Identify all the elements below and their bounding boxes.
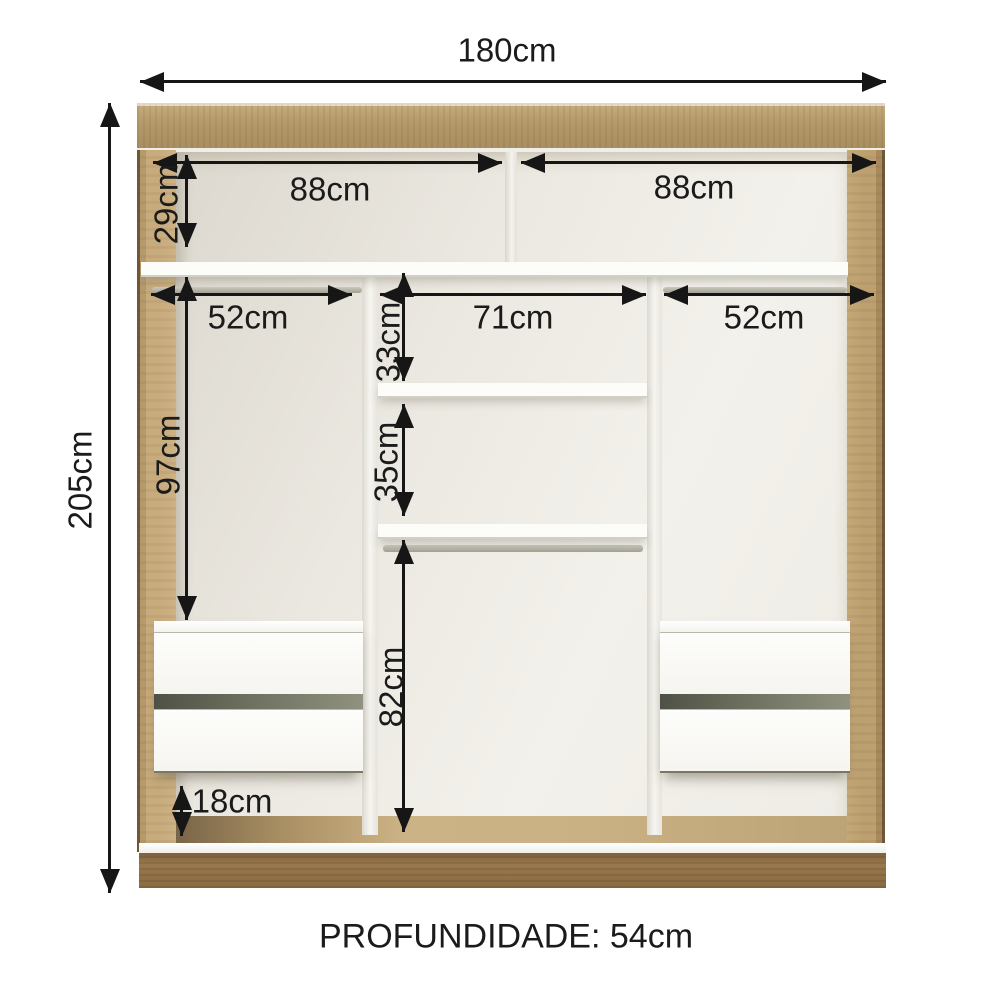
plinth-panel	[139, 853, 886, 888]
center-upper-height-label: 33cm	[372, 302, 405, 383]
top-left-width-label: 88cm	[290, 173, 371, 206]
left-drawer-1	[154, 632, 363, 694]
top-shelf	[141, 262, 848, 277]
depth-label: PROFUNDIDADE: 54cm	[319, 918, 693, 957]
right-drawer-gap	[660, 694, 850, 709]
left-height-label: 97cm	[152, 415, 185, 496]
top-left-width-arrow	[153, 161, 502, 164]
base-front-edge	[139, 843, 886, 853]
right-drawer-unit	[660, 621, 850, 772]
center-hanging-rod	[383, 545, 643, 552]
center-middle-height-label: 35cm	[370, 422, 403, 503]
left-width-label: 52cm	[208, 301, 289, 334]
bottom-clearance-arrow	[180, 786, 183, 836]
center-upper-shelf	[378, 383, 647, 398]
left-drawer-gap	[154, 694, 363, 709]
top-height-arrow	[185, 155, 188, 247]
left-drawer-2	[154, 709, 363, 771]
bottom-clearance-label: 18cm	[192, 785, 273, 818]
top-height-label: 29cm	[150, 164, 183, 245]
top-right-width-arrow	[521, 161, 876, 164]
left-drawer-unit	[154, 621, 363, 772]
interior-bottom-panel	[176, 816, 847, 843]
top-right-width-label: 88cm	[654, 171, 735, 204]
right-width-arrow	[664, 293, 874, 296]
diagram-canvas: 180cm 205cm 88cm 88cm 29cm 52c	[0, 0, 1000, 1000]
center-width-arrow	[380, 293, 646, 296]
right-width-label: 52cm	[724, 301, 805, 334]
center-lower-height-label: 82cm	[375, 647, 408, 728]
total-height-arrow	[108, 103, 111, 893]
right-drawer-2	[660, 709, 850, 771]
center-width-label: 71cm	[473, 301, 554, 334]
total-height-label: 205cm	[64, 430, 97, 529]
center-lower-shelf	[378, 524, 647, 539]
right-side-panel	[847, 150, 885, 852]
wardrobe-top-panel	[137, 103, 885, 152]
right-drawer-1	[660, 632, 850, 694]
total-width-label: 180cm	[457, 34, 556, 67]
right-drawer-unit-top	[660, 621, 850, 632]
left-drawer-unit-base	[154, 771, 363, 773]
left-drawer-unit-top	[154, 621, 363, 632]
total-width-arrow	[140, 80, 886, 83]
right-drawer-unit-base	[660, 771, 850, 773]
top-compartment-divider	[505, 152, 517, 264]
